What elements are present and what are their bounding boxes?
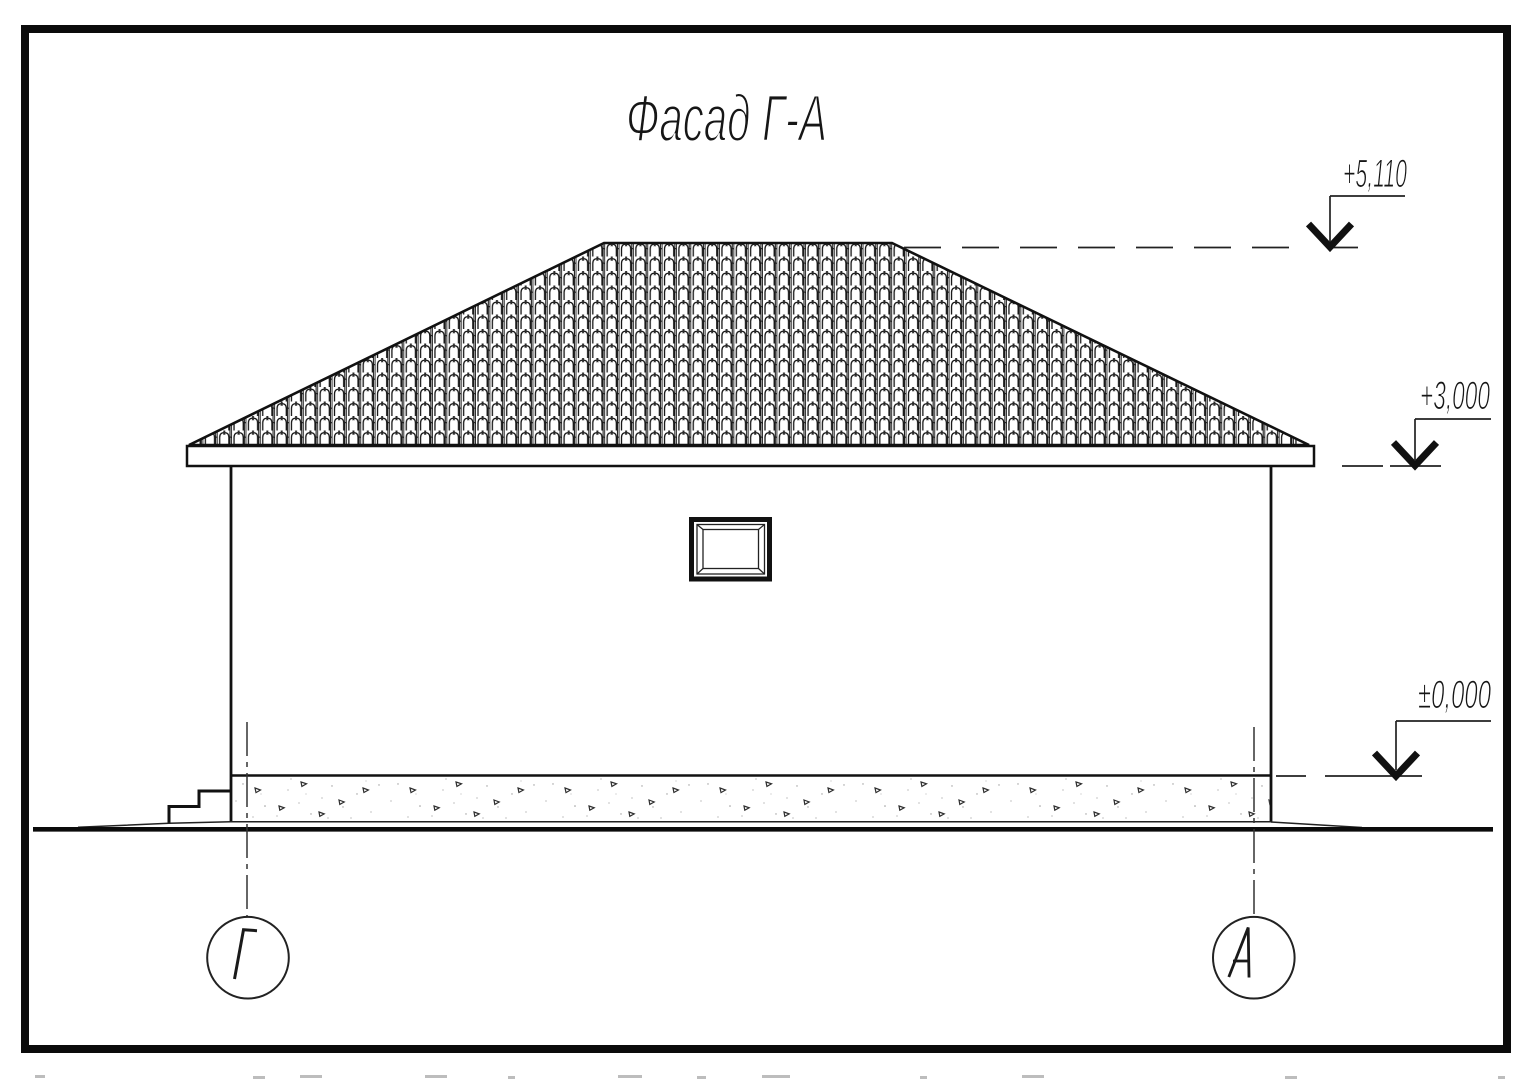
svg-text:+3,000: +3,000 bbox=[1420, 374, 1490, 418]
svg-text:Фасад Г-А: Фасад Г-А bbox=[626, 81, 827, 155]
svg-text:+5,110: +5,110 bbox=[1343, 152, 1407, 196]
svg-text:±0,000: ±0,000 bbox=[1418, 673, 1491, 717]
